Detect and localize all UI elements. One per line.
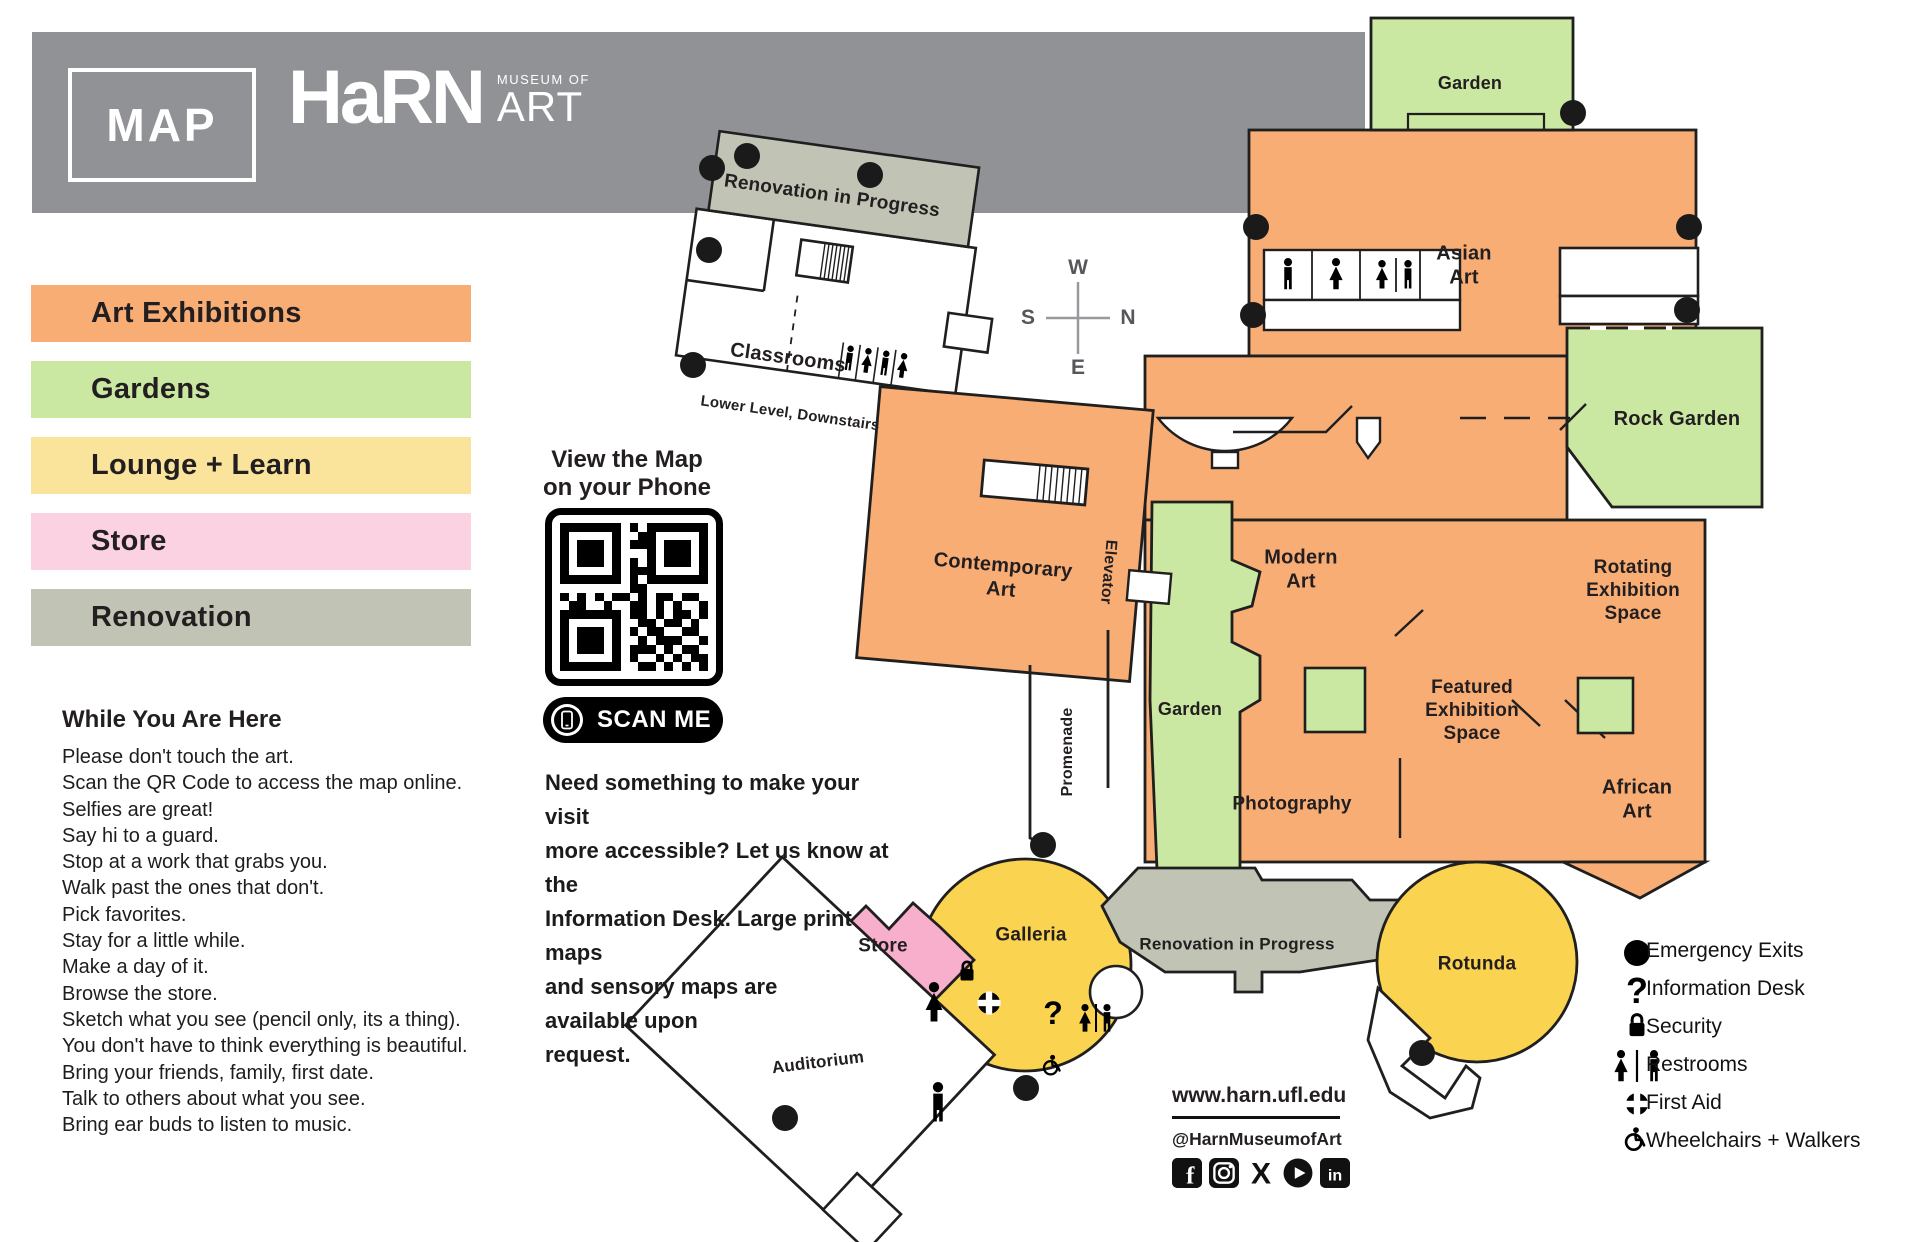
facebook-icon[interactable]: f bbox=[1172, 1158, 1202, 1188]
instagram-icon[interactable] bbox=[1209, 1158, 1239, 1188]
label-rotating-exhibition: Rotating Exhibition Space bbox=[1577, 556, 1689, 626]
while-line: Bring ear buds to listen to music. bbox=[62, 1112, 532, 1138]
label-rock-garden: Rock Garden bbox=[1614, 407, 1741, 431]
while-line: Browse the store. bbox=[62, 981, 532, 1007]
label-photography: Photography bbox=[1232, 792, 1351, 815]
svg-text:f: f bbox=[1186, 1163, 1195, 1188]
website-link[interactable]: www.harn.ufl.edu bbox=[1172, 1084, 1350, 1108]
while-you-are-here: While You Are Here Please don't touch th… bbox=[62, 706, 532, 1138]
color-key-item: Store bbox=[31, 513, 471, 570]
compass-w: W bbox=[1068, 256, 1088, 280]
garden-square-east bbox=[1578, 678, 1633, 733]
x-icon[interactable]: X bbox=[1246, 1158, 1276, 1188]
compass-rose bbox=[1046, 282, 1110, 354]
compass-e: E bbox=[1071, 356, 1085, 380]
elevator-box bbox=[1127, 570, 1171, 604]
divider bbox=[1172, 1116, 1340, 1119]
scan-me-label: SCAN ME bbox=[597, 706, 711, 734]
color-key-item: Lounge + Learn bbox=[31, 437, 471, 494]
art-exhibitions-areas bbox=[857, 130, 1705, 898]
while-line: Bring your friends, family, first date. bbox=[62, 1060, 532, 1086]
qr-heading: View the Map on your Phone bbox=[543, 446, 711, 502]
while-line: Sketch what you see (pencil only, its a … bbox=[62, 1007, 532, 1033]
phone-icon bbox=[543, 698, 587, 742]
scan-me-pill: SCAN ME bbox=[543, 697, 723, 743]
label-featured-exhibition: Featured Exhibition Space bbox=[1411, 676, 1533, 746]
while-line: Please don't touch the art. bbox=[62, 744, 532, 770]
qr-code-modules bbox=[560, 523, 708, 671]
information-desk-icon: ? bbox=[1043, 995, 1063, 1031]
while-line: Talk to others about what you see. bbox=[62, 1086, 532, 1112]
label-store: Store bbox=[858, 934, 908, 957]
color-key-item: Renovation bbox=[31, 589, 471, 646]
map-legend: Emergency Exits Information Desk Securit… bbox=[1594, 932, 1861, 1160]
legend-information-desk: Information Desk bbox=[1646, 977, 1805, 1001]
label-asian-art: Asian Art bbox=[1428, 242, 1500, 291]
stairs-icon bbox=[981, 460, 1088, 505]
harn-museum-map-poster: MAP HaRN MUSEUM OF ART Art Exhibitions G… bbox=[0, 0, 1920, 1242]
color-key-item: Gardens bbox=[31, 361, 471, 418]
while-line: Say hi to a guard. bbox=[62, 823, 532, 849]
linkedin-icon[interactable]: in bbox=[1320, 1158, 1350, 1188]
galleria-notch bbox=[1090, 966, 1142, 1018]
garden-square-west bbox=[1305, 668, 1365, 732]
while-line: Selfies are great! bbox=[62, 797, 532, 823]
color-key: Art Exhibitions Gardens Lounge + Learn S… bbox=[31, 285, 471, 665]
label-african-art: African Art bbox=[1595, 776, 1679, 825]
color-key-item: Art Exhibitions bbox=[31, 285, 471, 342]
while-title: While You Are Here bbox=[62, 706, 532, 734]
room-renovation-lower bbox=[1102, 868, 1410, 992]
label-promenade: Promenade bbox=[1058, 708, 1078, 797]
compass-s: S bbox=[1021, 306, 1035, 330]
label-galleria: Galleria bbox=[995, 923, 1066, 946]
legend-security: Security bbox=[1646, 1015, 1722, 1039]
compass-n: N bbox=[1120, 306, 1135, 330]
label-renovation-lower: Renovation in Progress bbox=[1139, 935, 1334, 956]
legend-wheelchairs: Wheelchairs + Walkers bbox=[1646, 1129, 1861, 1153]
legend-first-aid: First Aid bbox=[1646, 1091, 1722, 1115]
label-modern-art: Modern Art bbox=[1255, 546, 1347, 595]
while-line: Stay for a little while. bbox=[62, 928, 532, 954]
svg-text:in: in bbox=[1328, 1167, 1342, 1185]
label-garden-north: Garden bbox=[1438, 73, 1502, 95]
while-line: You don't have to think everything is be… bbox=[62, 1033, 532, 1059]
label-garden-central: Garden bbox=[1158, 699, 1222, 721]
social-handle: @HarnMuseumofArt bbox=[1172, 1129, 1350, 1150]
qr-code bbox=[545, 508, 723, 686]
footer: www.harn.ufl.edu @HarnMuseumofArt f X bbox=[1172, 1084, 1350, 1188]
svg-text:X: X bbox=[1251, 1158, 1271, 1188]
accessibility-note: Need something to make your visitmore ac… bbox=[545, 766, 905, 1072]
label-rotunda: Rotunda bbox=[1438, 952, 1516, 975]
while-line: Walk past the ones that don't. bbox=[62, 875, 532, 901]
youtube-icon[interactable] bbox=[1283, 1158, 1313, 1188]
while-line: Scan the QR Code to access the map onlin… bbox=[62, 770, 532, 796]
social-icons: f X in bbox=[1172, 1158, 1350, 1188]
legend-emergency-exits: Emergency Exits bbox=[1646, 939, 1804, 963]
while-line: Pick favorites. bbox=[62, 902, 532, 928]
while-line: Make a day of it. bbox=[62, 954, 532, 980]
legend-restrooms: Restrooms bbox=[1646, 1053, 1748, 1077]
while-line: Stop at a work that grabs you. bbox=[62, 849, 532, 875]
